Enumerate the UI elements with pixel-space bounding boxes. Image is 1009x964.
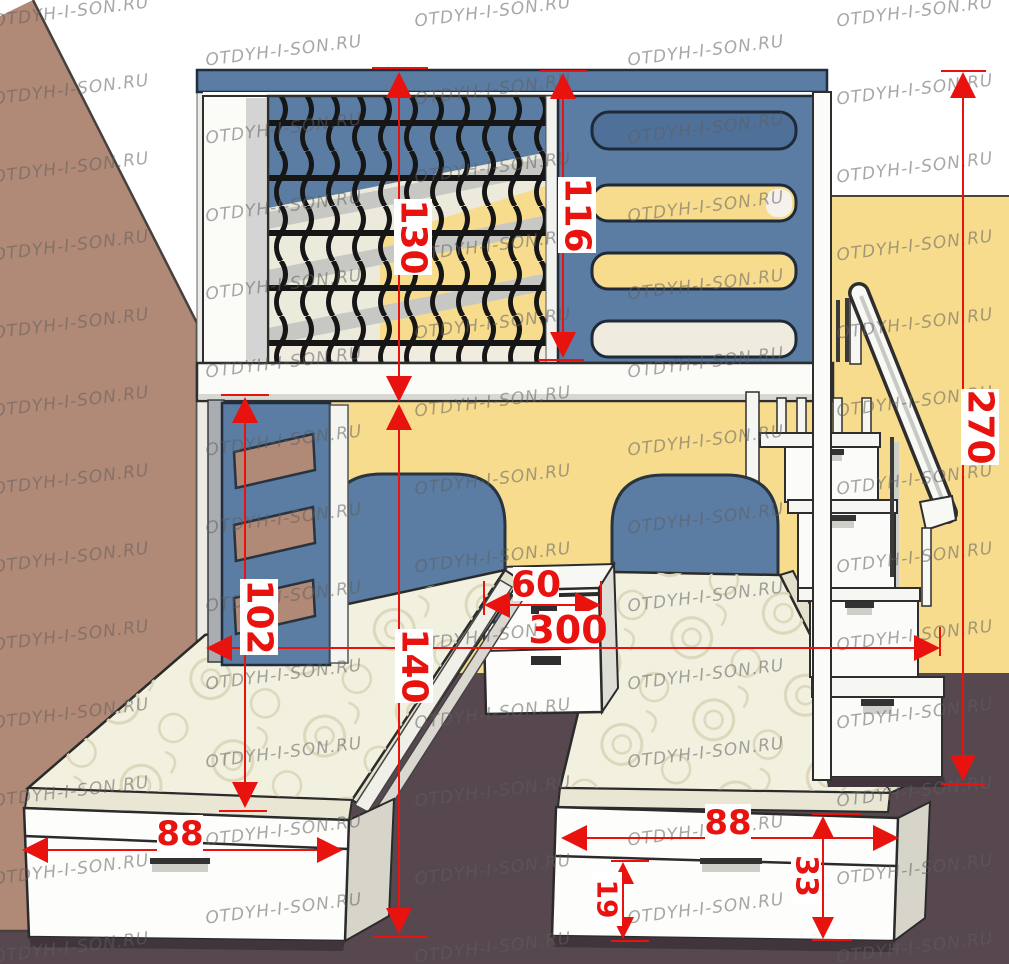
dimension-annotations: 130 116 270 102 140 60 300 88 88 19 33: [0, 0, 1009, 964]
dim-label-60: 60: [511, 565, 561, 606]
dim-label-102: 102: [239, 579, 280, 654]
furniture-dimension-diagram: OTDYH-I-SON.RUOTDYH-I-SON.RUOTDYH-I-SON.…: [0, 0, 1009, 964]
dim-label-19: 19: [591, 880, 624, 919]
dim-label-33: 33: [789, 855, 824, 897]
dim-label-140: 140: [394, 628, 435, 703]
dimension-labels: 130 116 270 102 140 60 300 88 88 19 33: [156, 177, 1000, 926]
dim-label-88-right: 88: [704, 803, 751, 843]
dim-label-300: 300: [528, 608, 607, 652]
dim-label-270: 270: [960, 389, 1001, 464]
dim-label-88-left: 88: [156, 814, 203, 854]
dim-label-116: 116: [557, 177, 598, 252]
dim-label-130: 130: [393, 199, 434, 274]
